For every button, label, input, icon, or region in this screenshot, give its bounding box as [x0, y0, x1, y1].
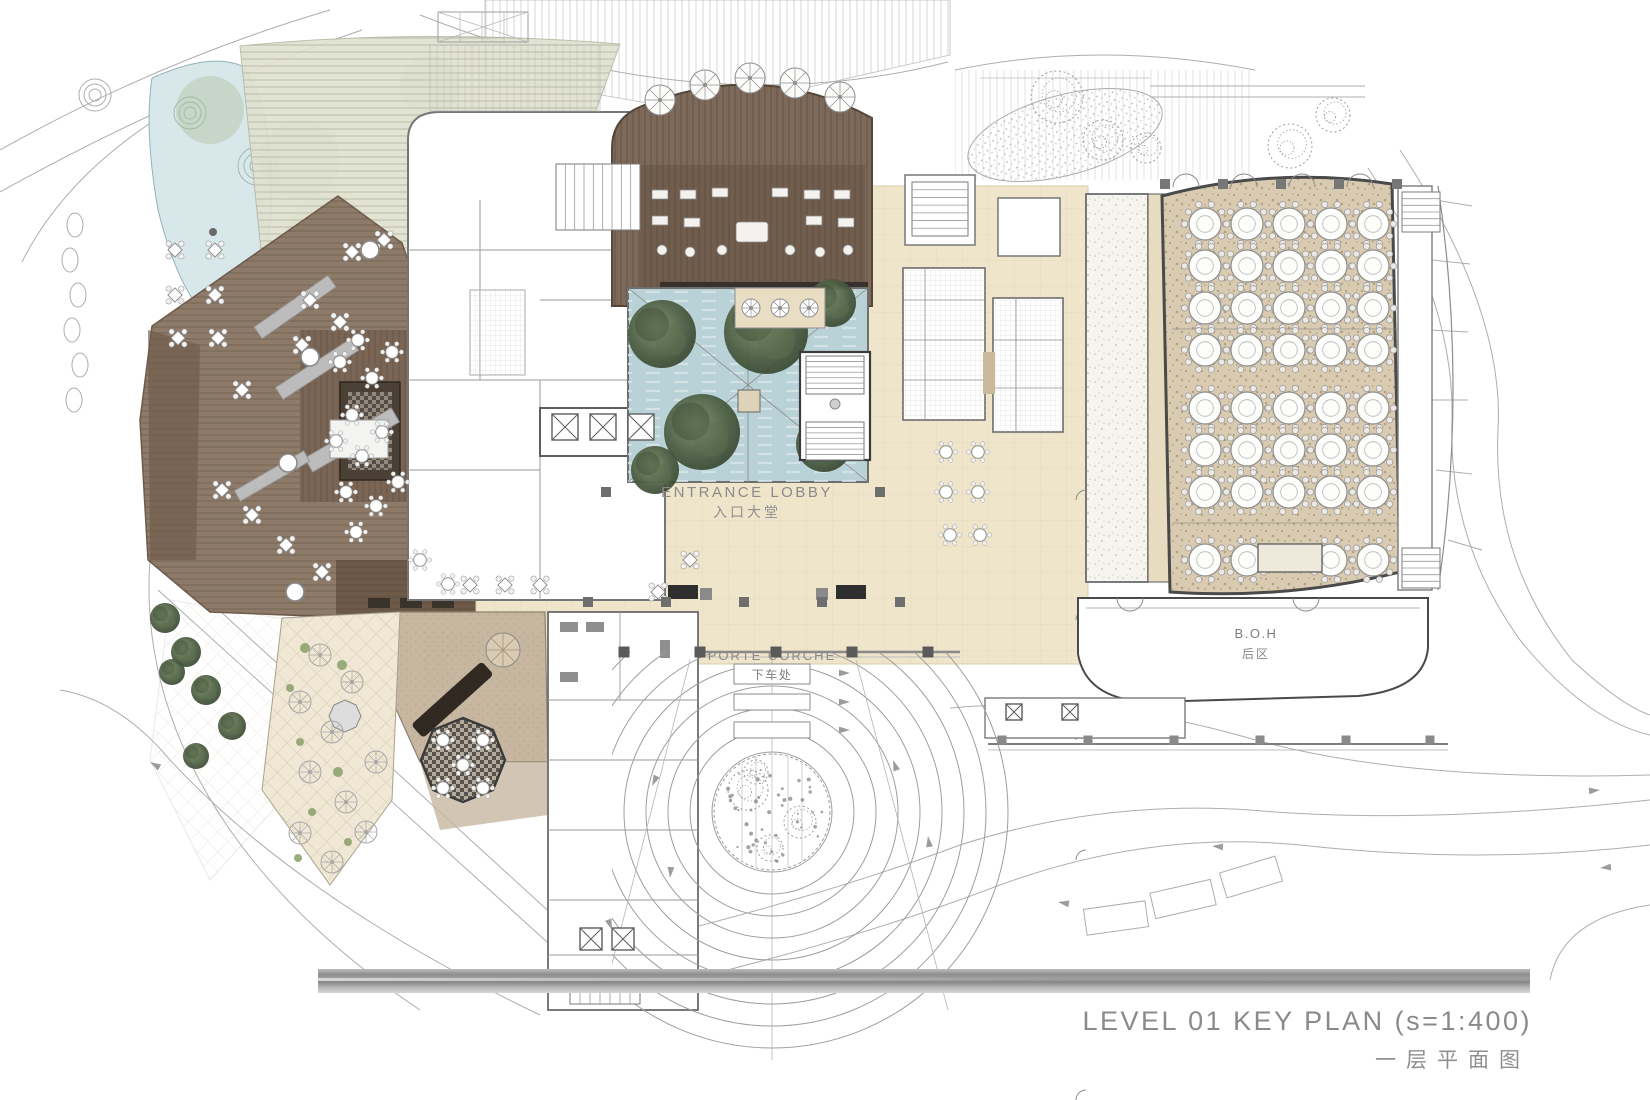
- column: [875, 487, 885, 497]
- column: [1342, 736, 1351, 745]
- tree-canopy: [183, 743, 209, 769]
- stair-run: [1402, 192, 1440, 232]
- column: [1218, 179, 1228, 189]
- round-column: [361, 241, 379, 259]
- entrance-lobby-label-en: ENTRANCE LOBBY: [661, 484, 833, 501]
- direction-arrow: [839, 670, 850, 677]
- column: [895, 597, 905, 607]
- east-gallery: [1398, 186, 1432, 590]
- elevator-shaft: [1062, 704, 1078, 720]
- elevator-shaft: [612, 928, 634, 950]
- island-platform: [738, 390, 760, 412]
- reception-desk: [836, 585, 866, 599]
- column: [619, 647, 630, 658]
- direction-arrow: [925, 836, 933, 848]
- sketch-tree: [1268, 124, 1312, 168]
- stair-run: [806, 422, 864, 460]
- round-column: [286, 583, 304, 601]
- banquet-hall: [1162, 174, 1453, 594]
- porte-cochere-label-cn: 下车处: [752, 667, 793, 682]
- column: [771, 647, 782, 658]
- column: [923, 647, 934, 658]
- column: [1426, 736, 1435, 745]
- link-corridor: [983, 352, 995, 394]
- floor-plan-drawing: ENTRANCE LOBBY 入口大堂 B.O.H 后区: [0, 0, 1650, 1100]
- plan-subtitle: 一层平面图: [1083, 1044, 1532, 1074]
- column: [583, 597, 593, 607]
- column: [1334, 179, 1344, 189]
- direction-arrow: [839, 699, 850, 706]
- direction-arrow: [1600, 864, 1612, 872]
- column: [1170, 736, 1179, 745]
- column: [1256, 736, 1265, 745]
- parasol-table: [825, 82, 855, 112]
- water-deck-tables: [742, 299, 818, 317]
- parasol-table: [321, 851, 343, 873]
- round-column: [279, 454, 297, 472]
- column: [601, 487, 611, 497]
- tree-canopy: [191, 675, 221, 705]
- column: [661, 597, 671, 607]
- column: [695, 647, 706, 658]
- elevator-shaft: [628, 414, 654, 440]
- parasol-table: [289, 691, 311, 713]
- parasol-table: [735, 63, 765, 93]
- parasol-table: [299, 761, 321, 783]
- tree-canopy: [628, 300, 696, 368]
- round-column: [301, 348, 319, 366]
- reception-desk: [668, 585, 698, 599]
- elevator-shaft: [580, 928, 602, 950]
- boh-label-en: B.O.H: [1235, 626, 1278, 641]
- column: [739, 597, 749, 607]
- direction-arrow: [1212, 843, 1224, 851]
- tree-canopy: [159, 659, 185, 685]
- stage-platform: [1258, 544, 1322, 572]
- tree-canopy: [218, 712, 246, 740]
- kitchen-zone: [470, 290, 525, 375]
- parasol-table: [335, 791, 357, 813]
- parasol-table: [690, 70, 720, 100]
- parasol-table: [742, 299, 760, 317]
- parasol-table: [365, 751, 387, 773]
- stair-run: [556, 164, 640, 230]
- elevator-shaft: [552, 414, 578, 440]
- boh-label-cn: 后区: [1242, 647, 1270, 661]
- parasol-table: [321, 721, 343, 743]
- floor-plan-sheet: ENTRANCE LOBBY 入口大堂 B.O.H 后区: [0, 0, 1650, 1100]
- title-divider-bar: [318, 969, 1530, 993]
- column: [1160, 179, 1170, 189]
- column: [817, 597, 827, 607]
- column: [1084, 736, 1093, 745]
- parasol-table: [771, 299, 789, 317]
- parasol-table: [309, 644, 331, 666]
- parasol-table: [800, 299, 818, 317]
- parasol-table: [780, 68, 810, 98]
- direction-arrow: [839, 727, 850, 734]
- stair-run: [1402, 548, 1440, 588]
- column: [847, 647, 858, 658]
- parasol-table: [341, 671, 363, 693]
- column: [998, 736, 1007, 745]
- column: [1392, 179, 1402, 189]
- column: [1276, 179, 1286, 189]
- elevator-shaft: [590, 414, 616, 440]
- stair-run: [912, 182, 968, 236]
- parasol-table: [645, 85, 675, 115]
- direction-arrow: [1589, 787, 1601, 795]
- elevator-shaft: [1006, 704, 1022, 720]
- direction-arrow: [890, 759, 900, 772]
- sketch-tree: [1316, 98, 1350, 132]
- tree-canopy: [150, 603, 180, 633]
- direction-arrow: [1057, 899, 1069, 908]
- stair-block: [998, 198, 1060, 256]
- parasol-table: [355, 821, 377, 843]
- terrace-fountain: [329, 700, 361, 732]
- stair-run: [806, 356, 864, 394]
- lounge-bar: [612, 63, 872, 306]
- title-block: LEVEL 01 KEY PLAN (s=1:400) 一层平面图: [1083, 1006, 1532, 1074]
- entrance-lobby-label-cn: 入口大堂: [713, 504, 781, 520]
- parasol-table: [289, 822, 311, 844]
- plan-title: LEVEL 01 KEY PLAN (s=1:400): [1083, 1006, 1532, 1037]
